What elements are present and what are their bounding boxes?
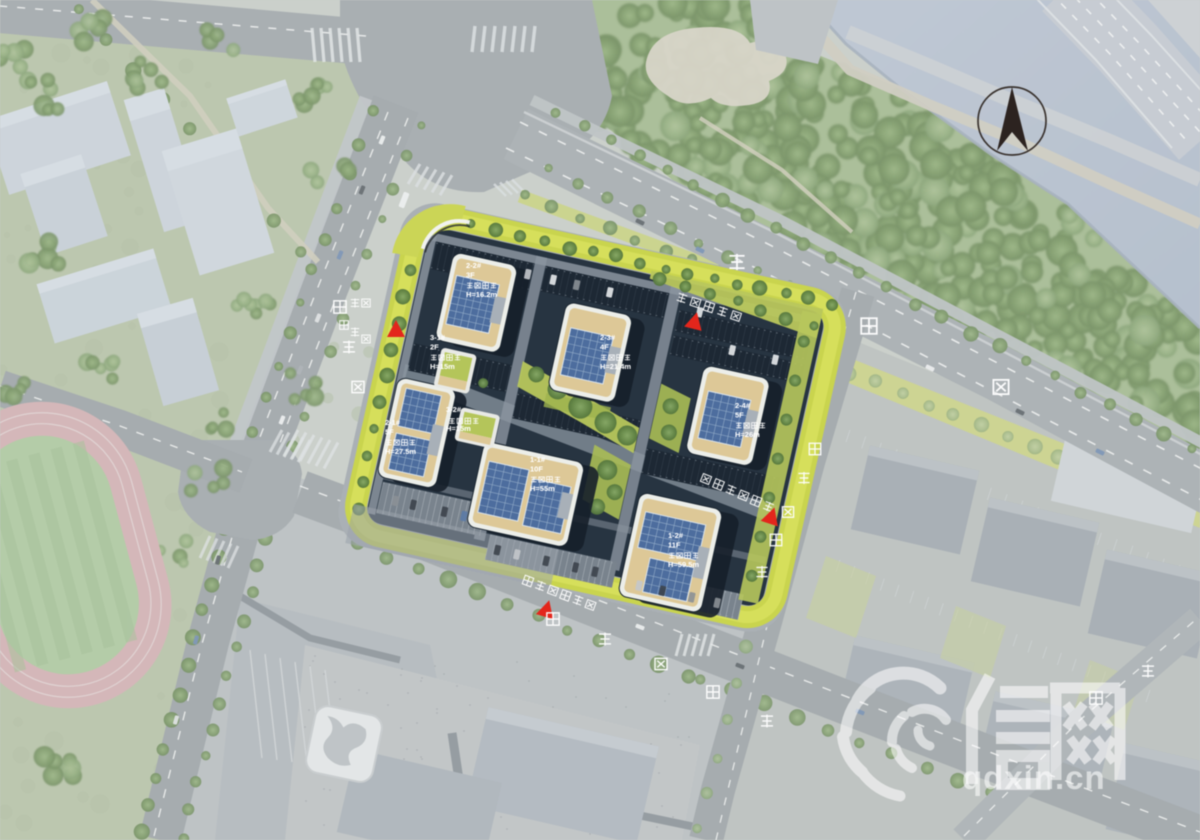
svg-text:H=26m: H=26m (735, 430, 760, 439)
svg-text:qdxin.cn: qdxin.cn (962, 759, 1106, 796)
svg-text:3-2#: 3-2# (446, 405, 462, 414)
svg-text:H=21.4m: H=21.4m (600, 362, 631, 371)
svg-text:H=15m: H=15m (430, 362, 455, 371)
svg-text:5F: 5F (385, 428, 394, 437)
svg-text:10F: 10F (530, 465, 543, 474)
svg-text:3F: 3F (466, 271, 475, 280)
svg-text:3-1#: 3-1# (430, 333, 446, 342)
svg-text:2-4#: 2-4# (735, 401, 751, 410)
svg-text:5F: 5F (735, 411, 744, 420)
svg-text:H=59.5m: H=59.5m (668, 560, 699, 569)
svg-text:1-1#: 1-1# (530, 455, 546, 464)
svg-text:1-2#: 1-2# (668, 531, 684, 540)
svg-text:2-2#: 2-2# (466, 261, 482, 270)
svg-text:2-3#: 2-3# (600, 333, 616, 342)
svg-text:4F: 4F (600, 343, 609, 352)
svg-text:2F: 2F (430, 343, 439, 352)
svg-text:H=15m: H=15m (446, 424, 471, 433)
svg-text:H=16.2m: H=16.2m (466, 290, 497, 299)
svg-text:2-1#: 2-1# (385, 418, 401, 427)
svg-text:H=27.5m: H=27.5m (385, 447, 416, 456)
svg-text:11F: 11F (668, 541, 681, 550)
svg-text:H=55m: H=55m (530, 484, 555, 493)
